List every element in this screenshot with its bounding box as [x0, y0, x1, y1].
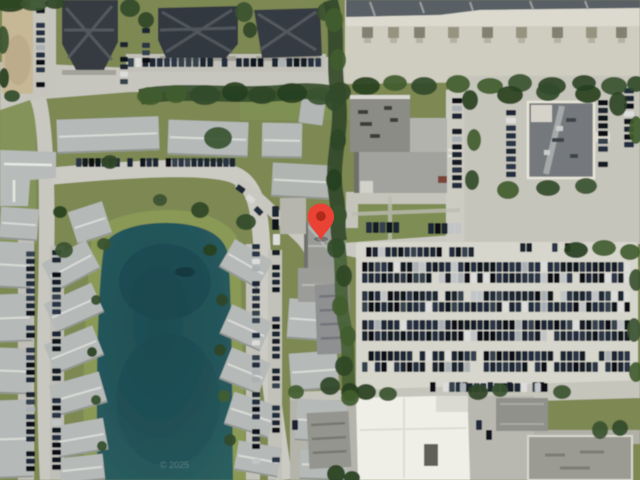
svg-text:© 2025: © 2025	[160, 460, 189, 470]
